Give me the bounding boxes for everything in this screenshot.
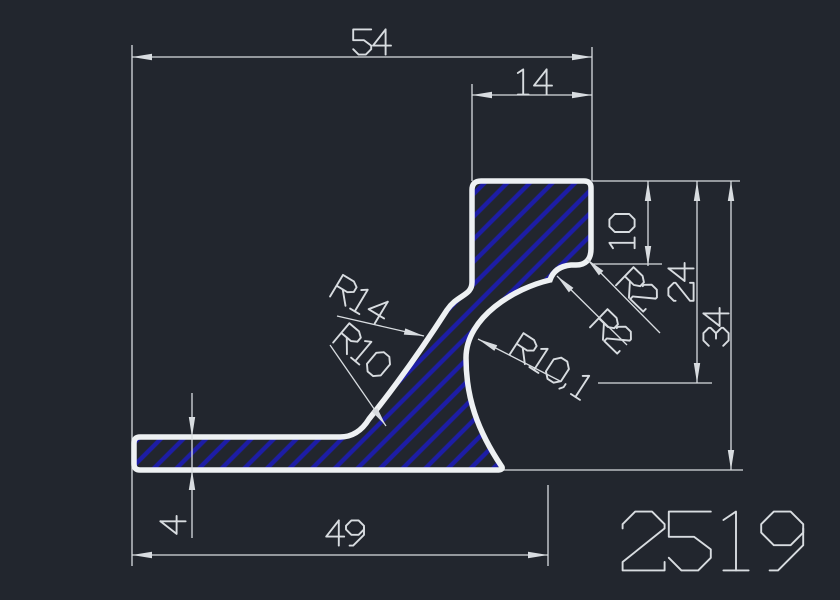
- cad-drawing-svg: [0, 0, 840, 600]
- drawing-background: [0, 0, 840, 600]
- cad-canvas: 2519: [0, 0, 840, 600]
